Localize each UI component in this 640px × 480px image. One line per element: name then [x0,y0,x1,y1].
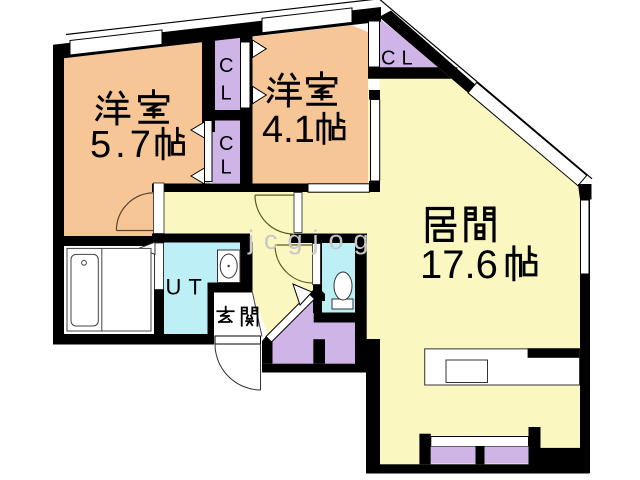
svg-text:L: L [221,157,232,179]
svg-text:4.1: 4.1 [262,109,315,151]
svg-text:5.7: 5.7 [90,124,155,166]
svg-text:C: C [219,55,233,77]
svg-text:C: C [219,133,233,155]
svg-text:L: L [221,83,232,105]
svg-text:UT: UT [166,275,209,300]
svg-text:jcgjog: jcgjog [247,225,379,255]
svg-text:17.6: 17.6 [420,243,498,287]
svg-text:CL: CL [381,48,419,70]
